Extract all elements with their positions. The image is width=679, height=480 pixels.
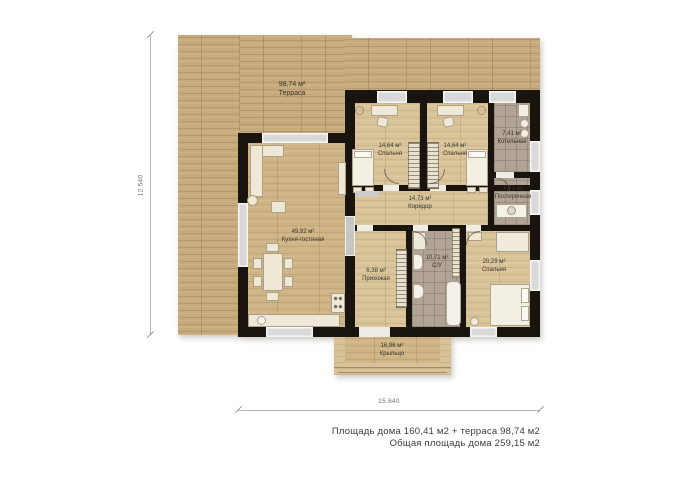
dimension-line-vertical bbox=[150, 35, 151, 335]
terrace-deck-left bbox=[178, 35, 240, 335]
tv-unit bbox=[338, 162, 346, 195]
window-boiler bbox=[489, 91, 516, 103]
kitchen-sink bbox=[257, 316, 266, 325]
window-bedroom-1 bbox=[377, 91, 407, 103]
nightstand bbox=[479, 187, 488, 193]
room-label-bedroom-3: 20,29 м² Спальня bbox=[482, 259, 506, 275]
room-label-bathroom: 10,71 м² С/У bbox=[426, 255, 449, 271]
pocket-door-living bbox=[345, 216, 355, 256]
door-entry-hall bbox=[357, 225, 373, 231]
room-label-terrace: 98,74 м² Терраса bbox=[279, 80, 306, 98]
dimension-width-label: 15.640 bbox=[378, 398, 400, 405]
toilet bbox=[413, 284, 424, 299]
window-living-west bbox=[238, 203, 248, 267]
room-name: Котельная bbox=[497, 139, 526, 147]
floor-plan: 98,74 м² Терраса 14,64 м² Спальня 14,64 … bbox=[0, 0, 679, 480]
porch-step-line-2 bbox=[338, 372, 447, 373]
door-bedroom-1 bbox=[383, 185, 399, 191]
pouf bbox=[470, 317, 479, 326]
room-name: Терраса bbox=[279, 89, 306, 98]
room-label-bedroom-2: 14,64 м² Спальня bbox=[443, 143, 467, 159]
bathroom-sink bbox=[413, 254, 423, 270]
wardrobe-entry-hall bbox=[396, 249, 407, 308]
wall-utility-west bbox=[488, 103, 494, 225]
dining-chair bbox=[284, 276, 293, 287]
sofa-left-section bbox=[250, 145, 263, 197]
window-laundry-east bbox=[530, 190, 540, 215]
room-label-kitchen-living: 49,92 м² Кухня-гостиная bbox=[282, 229, 324, 245]
terrace-deck-top-right bbox=[345, 38, 540, 92]
boiler-unit bbox=[518, 104, 529, 117]
wall-corridor-south bbox=[345, 225, 540, 231]
pillow bbox=[354, 151, 372, 158]
window-living-north bbox=[262, 133, 328, 143]
room-area: 10,71 м² bbox=[426, 255, 449, 263]
room-area: 16,96 м² bbox=[380, 343, 404, 351]
room-area: 6,38 м² bbox=[362, 268, 390, 276]
entrance-door bbox=[359, 327, 390, 337]
pillow bbox=[521, 306, 529, 321]
room-name: Спальня bbox=[378, 151, 402, 159]
room-label-laundry: 4,73 м² Постирочная bbox=[495, 186, 531, 202]
window-living-south bbox=[266, 327, 313, 337]
room-area: 49,92 м² bbox=[282, 229, 324, 237]
floor-plan-shapes bbox=[0, 0, 679, 480]
room-area: 7,41 м² bbox=[497, 131, 526, 139]
room-name: С/У bbox=[426, 263, 449, 271]
window-bedroom-2 bbox=[443, 91, 473, 103]
doormat bbox=[355, 191, 379, 196]
dining-chair bbox=[266, 292, 279, 301]
room-label-entry-hall: 6,38 м² Прихожая bbox=[362, 268, 390, 284]
dimension-height-label: 12.540 bbox=[137, 175, 144, 197]
room-label-corridor: 14,73 м² Коридор bbox=[408, 196, 432, 212]
room-label-bedroom-1: 14,64 м² Спальня bbox=[378, 143, 402, 159]
window-bedroom3-east bbox=[530, 260, 540, 291]
bathtub bbox=[446, 281, 461, 326]
door-laundry bbox=[496, 172, 514, 178]
nightstand bbox=[467, 187, 476, 193]
coffee-table bbox=[271, 201, 286, 213]
dimension-line-horizontal bbox=[238, 410, 540, 411]
wardrobe-bedroom-3 bbox=[496, 232, 529, 252]
desk-bedroom-1 bbox=[371, 105, 398, 116]
dining-chair bbox=[266, 243, 279, 252]
desk-bedroom-2 bbox=[437, 105, 464, 116]
dining-table bbox=[263, 253, 283, 291]
room-area: 98,74 м² bbox=[279, 80, 306, 89]
summary-line-1: Площадь дома 160,41 м2 + терраса 98,74 м… bbox=[332, 426, 540, 438]
area-summary: Площадь дома 160,41 м2 + терраса 98,74 м… bbox=[332, 426, 540, 449]
wardrobe-bedroom-1 bbox=[408, 142, 420, 189]
desk-chair bbox=[376, 116, 389, 128]
towel-radiator bbox=[452, 228, 460, 278]
room-label-porch: 16,96 м² Крыльцо bbox=[380, 343, 404, 359]
room-name: Прихожая bbox=[362, 276, 390, 284]
summary-line-2: Общая площадь дома 259,15 м2 bbox=[332, 438, 540, 450]
pillow bbox=[521, 288, 529, 303]
room-name: Коридор bbox=[408, 204, 432, 212]
room-area: 14,64 м² bbox=[378, 143, 402, 151]
room-name: Кухня-гостиная bbox=[282, 237, 324, 245]
dining-chair bbox=[253, 276, 262, 287]
ceiling-light bbox=[355, 106, 364, 115]
stove bbox=[331, 293, 345, 313]
wall-bedroom-divider bbox=[420, 103, 427, 191]
room-name: Постирочная bbox=[495, 194, 531, 202]
window-bedroom3-south bbox=[470, 327, 497, 337]
ceiling-light bbox=[477, 106, 486, 115]
door-bathroom bbox=[413, 225, 428, 231]
room-area: 14,64 м² bbox=[443, 143, 467, 151]
room-name: Спальня bbox=[443, 151, 467, 159]
water-tank bbox=[520, 119, 529, 128]
dining-chair bbox=[284, 258, 293, 269]
room-name: Спальня bbox=[482, 267, 506, 275]
side-table bbox=[247, 195, 258, 206]
room-area: 20,29 м² bbox=[482, 259, 506, 267]
window-boiler-east bbox=[530, 141, 540, 172]
room-name: Крыльцо bbox=[380, 351, 404, 359]
room-area: 4,73 м² bbox=[495, 186, 531, 194]
washer-drum bbox=[507, 206, 516, 215]
dining-chair bbox=[253, 258, 262, 269]
pillow bbox=[468, 151, 486, 158]
porch-step-line-1 bbox=[334, 367, 451, 368]
room-label-boiler: 7,41 м² Котельная bbox=[497, 131, 526, 147]
room-area: 14,73 м² bbox=[408, 196, 432, 204]
